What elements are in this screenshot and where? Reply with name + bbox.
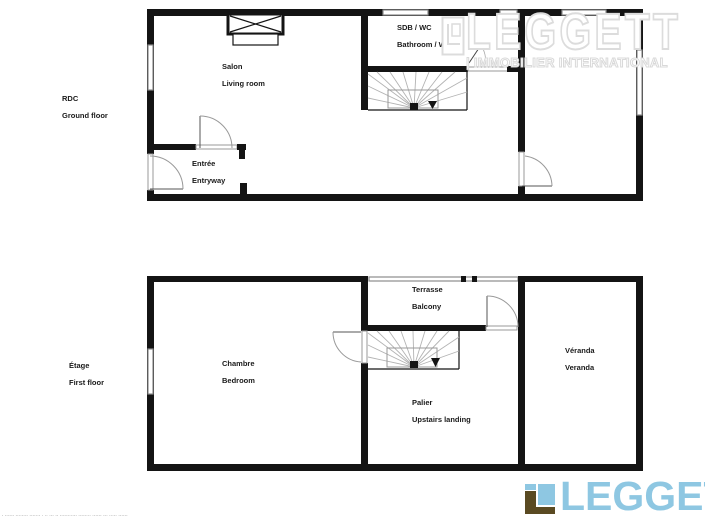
wall: [518, 276, 643, 282]
door-threshold: [486, 326, 517, 330]
room-label-living-room: Living room: [222, 80, 265, 88]
fine-print-disclaimer: - ------ -------- ------- - -- --- -- --…: [2, 513, 128, 517]
room-label-upstairs-landing: Upstairs landing: [412, 416, 471, 424]
floor-name-ground: Ground floor: [62, 112, 108, 120]
window: [148, 45, 153, 90]
floorplan-drawing: [0, 0, 705, 528]
door-arc: [487, 296, 518, 327]
floorplan-page: RDC Ground floor Salon Living room SDB /…: [0, 0, 705, 528]
wall: [368, 325, 486, 331]
watermark-tagline: | IMMOBILIER INTERNATIONAL: [466, 56, 668, 69]
floor-code-first: Étage: [69, 362, 89, 370]
leggett-logo-icon: [525, 484, 555, 515]
door-threshold: [362, 331, 367, 363]
wall: [147, 276, 368, 282]
door-threshold: [196, 145, 237, 149]
leggett-logo: LEGGETT: [525, 483, 705, 517]
room-label-salon: Salon: [222, 63, 242, 71]
room-label-veranda-en: Veranda: [565, 364, 594, 372]
stairs-start-marker: [410, 361, 418, 368]
room-label-bedroom: Bedroom: [222, 377, 255, 385]
window: [148, 349, 153, 394]
wall: [361, 276, 368, 471]
room-label-chambre: Chambre: [222, 360, 255, 368]
watermark-brand-text: LEGGETT: [466, 6, 681, 57]
door-arc: [200, 116, 232, 148]
room-label-terrasse: Terrasse: [412, 286, 443, 294]
floor-name-first: First floor: [69, 379, 104, 387]
door-arc: [333, 332, 361, 362]
balcony-railing: [369, 277, 518, 281]
room-label-palier: Palier: [412, 399, 432, 407]
wall: [239, 150, 245, 159]
railing-post: [472, 276, 477, 282]
wall: [237, 144, 246, 150]
room-label-sdb: SDB / WC: [397, 24, 432, 32]
leggett-watermark: LEGGETT | IMMOBILIER INTERNATIONAL: [441, 16, 705, 74]
window: [383, 10, 428, 15]
wall: [147, 144, 196, 150]
room-label-entree: Entrée: [192, 160, 215, 168]
first-floor-plan: [147, 276, 643, 471]
stairs-ground: [368, 72, 467, 110]
logo-brand-text: LEGGETT: [560, 476, 705, 517]
stairs-first: [368, 331, 459, 369]
stairs-start-marker: [410, 103, 418, 110]
room-label-balcony: Balcony: [412, 303, 441, 311]
wall: [147, 194, 643, 201]
room-label-veranda-fr: Véranda: [565, 347, 595, 355]
wall: [240, 183, 247, 194]
wall: [147, 464, 643, 471]
railing-post: [461, 276, 466, 282]
stairs-direction-arrow: [431, 358, 440, 367]
wall: [636, 276, 643, 471]
wall: [361, 15, 368, 110]
room-label-entryway: Entryway: [192, 177, 225, 185]
door-threshold: [148, 154, 153, 190]
door-threshold: [519, 152, 524, 186]
floor-code-ground: RDC: [62, 95, 78, 103]
chimney-symbol: [228, 14, 283, 45]
wall: [518, 276, 525, 471]
door-arc: [525, 156, 552, 186]
leggett-watermark-icon: [441, 16, 465, 56]
